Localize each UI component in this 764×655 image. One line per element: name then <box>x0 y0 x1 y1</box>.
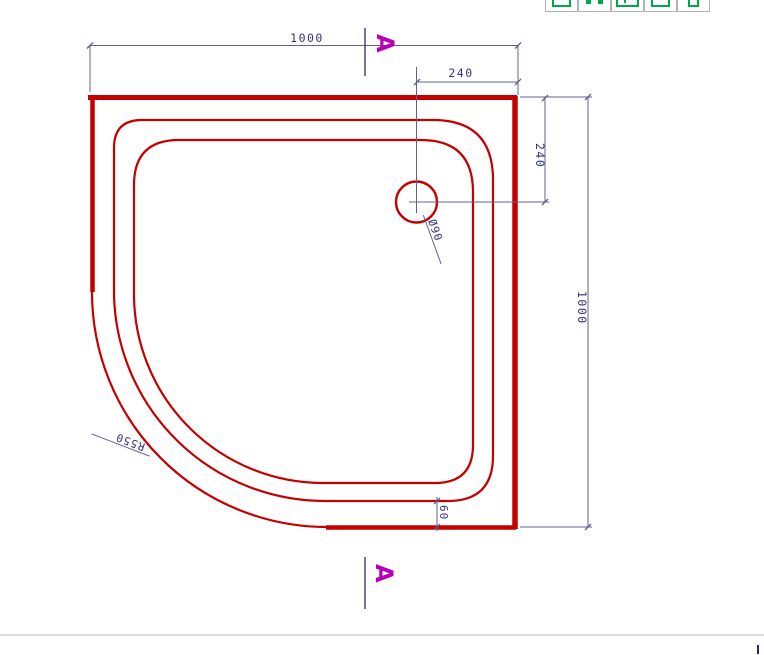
dim-corner-radius: R550 <box>114 430 147 453</box>
dim-width-top: 1000 <box>290 31 324 45</box>
dim-drain-diameter: Ø90 <box>425 217 445 243</box>
frame-icon <box>552 0 571 7</box>
dim-height-right: 1000 <box>575 291 589 325</box>
table-icon <box>616 0 639 7</box>
dim-rim-gap: 60 <box>437 505 450 520</box>
toolbar <box>545 0 710 12</box>
status-bar-divider <box>0 634 764 636</box>
toolbar-button-1[interactable] <box>545 0 578 12</box>
drawing-viewport: 1000 240 240 1000 60 Ø90 R550 A A <box>0 0 764 655</box>
section-marker-top: A <box>371 34 399 53</box>
toolbar-button-3[interactable] <box>611 0 644 12</box>
toolbar-button-5[interactable] <box>677 0 710 12</box>
tray-contour-middle <box>114 120 493 501</box>
canvas-corner-mark <box>757 645 759 654</box>
toolbar-button-2[interactable] <box>578 0 611 12</box>
tag-icon <box>688 0 699 7</box>
tray-contour-inner <box>134 140 473 483</box>
toolbar-button-4[interactable] <box>644 0 677 12</box>
tray-arc-outer <box>92 292 327 527</box>
section-marker-bottom: A <box>370 564 398 583</box>
nodes-icon <box>586 0 603 11</box>
tray-outline <box>88 96 517 529</box>
dim-drain-offset-h: 240 <box>448 66 473 80</box>
cad-drawing: 1000 240 240 1000 60 Ø90 R550 A A <box>0 0 764 655</box>
box-icon <box>651 0 670 7</box>
dim-drain-offset-v: 240 <box>533 143 547 168</box>
